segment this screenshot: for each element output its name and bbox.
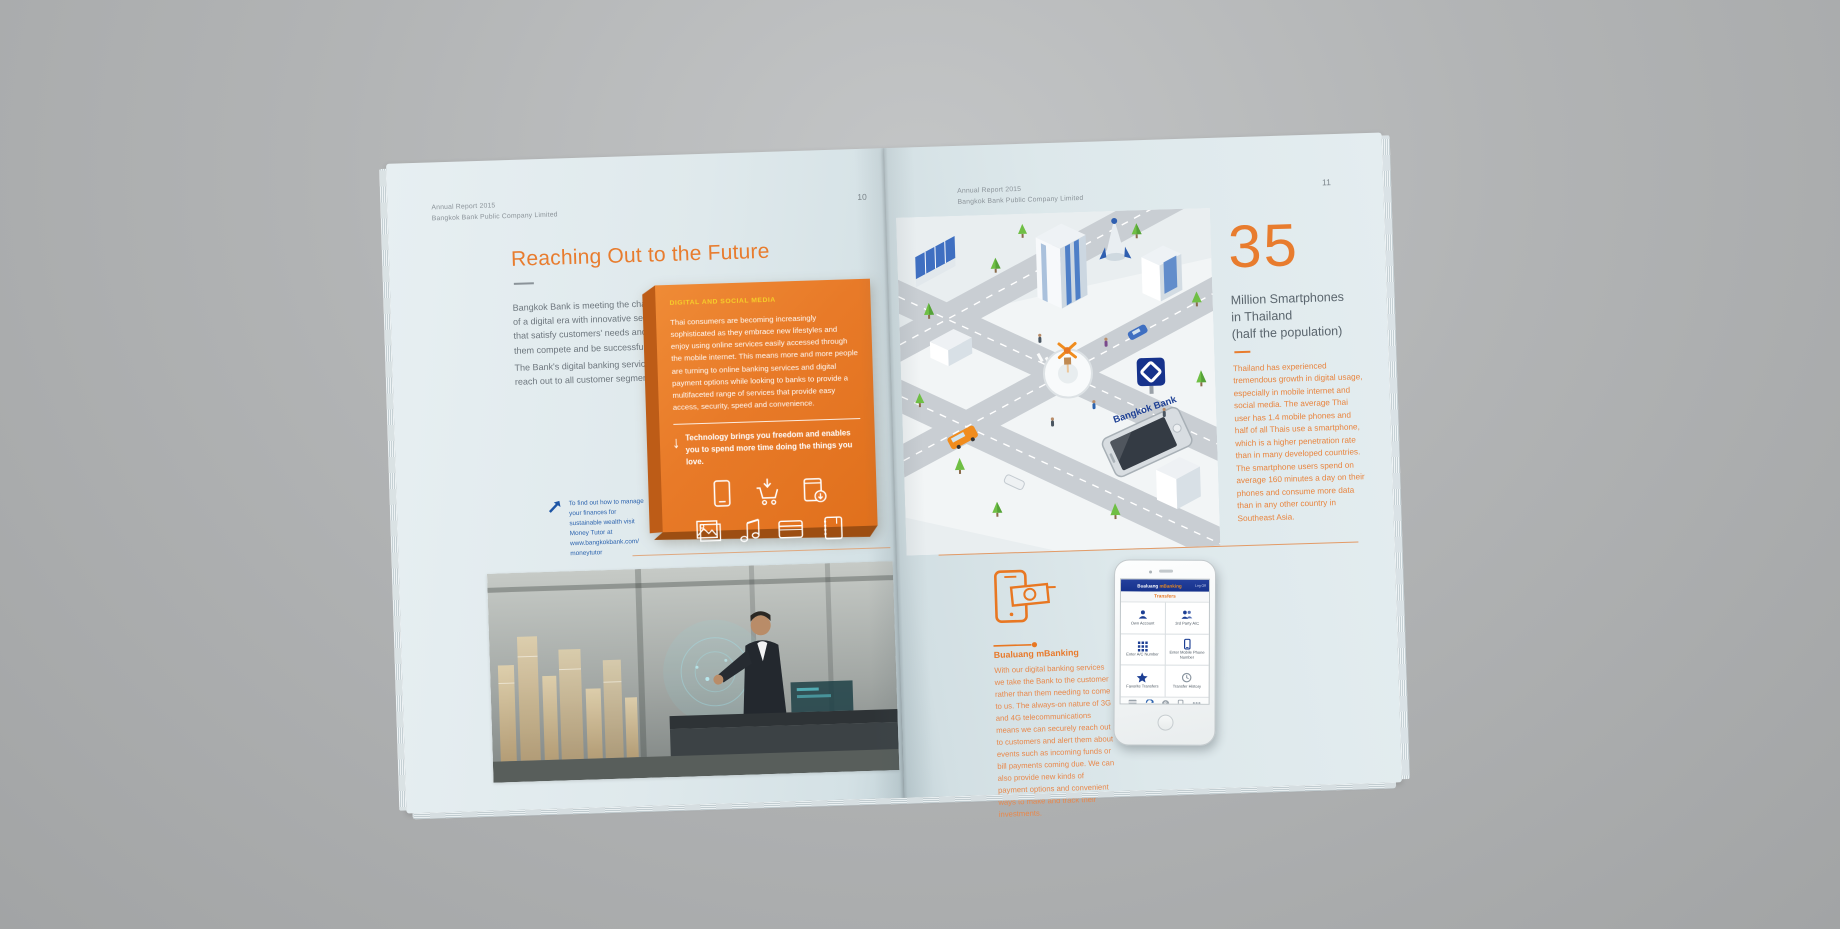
note-text: To find out how to manage your finances … (569, 497, 651, 559)
app-tab-bar: $ (1121, 696, 1209, 705)
panel-label: DIGITAL AND SOCIAL MEDIA (669, 294, 856, 307)
photos-icon (693, 518, 724, 547)
history-icon (1182, 673, 1192, 683)
transfer-icon[interactable] (1145, 699, 1153, 705)
package-download-icon (799, 475, 830, 506)
keypad-icon (1138, 641, 1148, 651)
payments-icon[interactable]: $ (1162, 699, 1170, 705)
home-button[interactable] (1158, 715, 1174, 731)
annual-report-spread: Annual Report 2015 Bangkok Bank Public C… (386, 133, 1402, 814)
shopping-cart-download-icon (752, 477, 783, 508)
person-icon (1138, 610, 1148, 620)
topup-icon[interactable] (1178, 699, 1184, 705)
money-tutor-note: To find out how to manage your finances … (547, 497, 653, 560)
businessman-photo (487, 561, 899, 783)
phone-camera (1149, 570, 1152, 573)
digital-social-media-panel: DIGITAL AND SOCIAL MEDIA Thai consumers … (642, 279, 878, 544)
app-header-bar: Bualuang mBanking Log Off (1121, 579, 1209, 591)
people-icon (1181, 610, 1193, 620)
mbanking-title: Bualuang mBanking (994, 647, 1079, 660)
page-number-right: 11 (1322, 177, 1331, 187)
arrow-up-right-icon (547, 499, 562, 514)
menu-3rd-party[interactable]: 3rd Party A/C (1165, 603, 1209, 634)
menu-own-account[interactable]: Own Account (1121, 602, 1165, 633)
right-page-header: Annual Report 2015 Bangkok Bank Public C… (957, 182, 1084, 208)
title-dash (514, 282, 534, 285)
transfer-menu-grid: Own Account 3rd Party A/C (1121, 602, 1209, 696)
stat-label: Million Smartphones in Thailand (half th… (1230, 289, 1345, 343)
logoff-button[interactable]: Log Off (1195, 584, 1206, 588)
panel-body: Thai consumers are becoming increasingly… (670, 311, 860, 414)
music-note-icon (736, 516, 763, 545)
credit-card-icon (775, 515, 806, 544)
glass-tower (1035, 223, 1088, 310)
panel-quote: Technology brings you freedom and enable… (685, 427, 862, 468)
tablet-icon (708, 478, 736, 509)
mobile-icon (1184, 638, 1191, 649)
isometric-city-illustration: Bangkok Bank (896, 208, 1220, 556)
smartphone-mockup: Bualuang mBanking Log Off Transfers Own … (1113, 559, 1216, 745)
office-scene-illustration (487, 561, 899, 783)
menu-enter-mobile-number[interactable]: Enter Mobile Phone Number (1165, 634, 1209, 665)
screen-title: Transfers (1154, 594, 1176, 599)
phone-speaker (1159, 570, 1173, 573)
panel-face: DIGITAL AND SOCIAL MEDIA Thai consumers … (655, 279, 878, 533)
section-title: Reaching Out to the Future (511, 240, 770, 272)
stat-body: Thailand has experienced tremendous grow… (1233, 359, 1369, 525)
menu-enter-ac-number[interactable]: Enter A/C Number (1121, 634, 1165, 665)
phone-screen: Bualuang mBanking Log Off Transfers Own … (1120, 578, 1210, 704)
app-title-bar: Transfers (1121, 591, 1209, 602)
page-right: Annual Report 2015 Bangkok Bank Public C… (884, 133, 1402, 798)
menu-favorite-transfers[interactable]: Favorite Transfers (1121, 665, 1165, 696)
page-number-left: 10 (857, 192, 867, 202)
left-page-header: Annual Report 2015 Bangkok Bank Public C… (431, 198, 558, 224)
phone-banknote-icon (991, 567, 1065, 632)
mbanking-body: With our digital banking services we tak… (994, 661, 1116, 821)
notebook-icon (818, 514, 847, 543)
panel-divider (673, 418, 860, 425)
more-icon[interactable] (1192, 700, 1200, 705)
app-brand: Bualuang mBanking (1124, 583, 1195, 588)
page-left: Annual Report 2015 Bangkok Bank Public C… (386, 148, 904, 813)
star-icon (1137, 673, 1148, 683)
accounts-icon[interactable] (1129, 699, 1137, 704)
stat-dash (1234, 351, 1250, 354)
left-section-rule (632, 547, 890, 556)
arrow-down-icon (674, 433, 679, 455)
stat-number: 35 (1227, 215, 1300, 277)
menu-transfer-history[interactable]: Transfer History (1165, 666, 1209, 697)
